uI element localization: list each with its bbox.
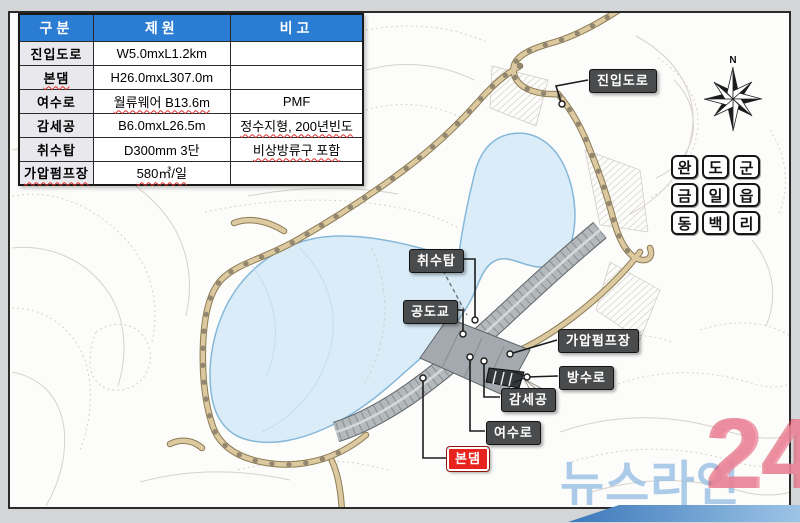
col-category: 구분 <box>19 14 93 41</box>
region-char: 리 <box>733 211 760 235</box>
table-row: 여수로 월류웨어 B13.6m PMF <box>19 89 363 113</box>
region-char: 군 <box>733 155 760 179</box>
table-row: 가압펌프장 580㎥/일 <box>19 161 363 185</box>
region-name-grid: 완 도 군 금 일 읍 동 백 리 <box>671 155 760 235</box>
label-intake-tower: 취수탑 <box>409 249 464 273</box>
region-char: 일 <box>702 183 729 207</box>
label-main-dam: 본댐 <box>447 447 489 471</box>
table-row: 취수탑 D300mm 3단 비상방류구 포함 <box>19 137 363 161</box>
region-char: 금 <box>671 183 698 207</box>
region-char: 완 <box>671 155 698 179</box>
label-stilling-basin: 감세공 <box>501 388 556 412</box>
table-row: 감세공 B6.0mxL26.5m 정수지형, 200년빈도 <box>19 113 363 137</box>
label-access-road: 진입도로 <box>589 69 657 93</box>
label-pump-station: 가압펌프장 <box>558 329 639 353</box>
region-char: 읍 <box>733 183 760 207</box>
spec-table-header: 구분 제원 비고 <box>19 14 363 41</box>
region-char: 백 <box>702 211 729 235</box>
dam-plan-infographic: { "colors":{ "header-blue":"#2b7cd3", "l… <box>0 0 800 523</box>
watermark-logo-number: 24 <box>708 404 800 504</box>
label-public-bridge: 공도교 <box>403 300 458 324</box>
col-note: 비고 <box>230 14 363 41</box>
table-row: 진입도로 W5.0mxL1.2km <box>19 41 363 65</box>
label-discharge-channel: 방수로 <box>559 366 614 390</box>
region-char: 동 <box>671 211 698 235</box>
label-spillway: 여수로 <box>486 421 541 445</box>
spec-table: 구분 제원 비고 진입도로 W5.0mxL1.2km 본댐 H26.0mxL30… <box>18 13 364 186</box>
region-char: 도 <box>702 155 729 179</box>
col-spec: 제원 <box>93 14 230 41</box>
table-row: 본댐 H26.0mxL307.0m <box>19 65 363 89</box>
